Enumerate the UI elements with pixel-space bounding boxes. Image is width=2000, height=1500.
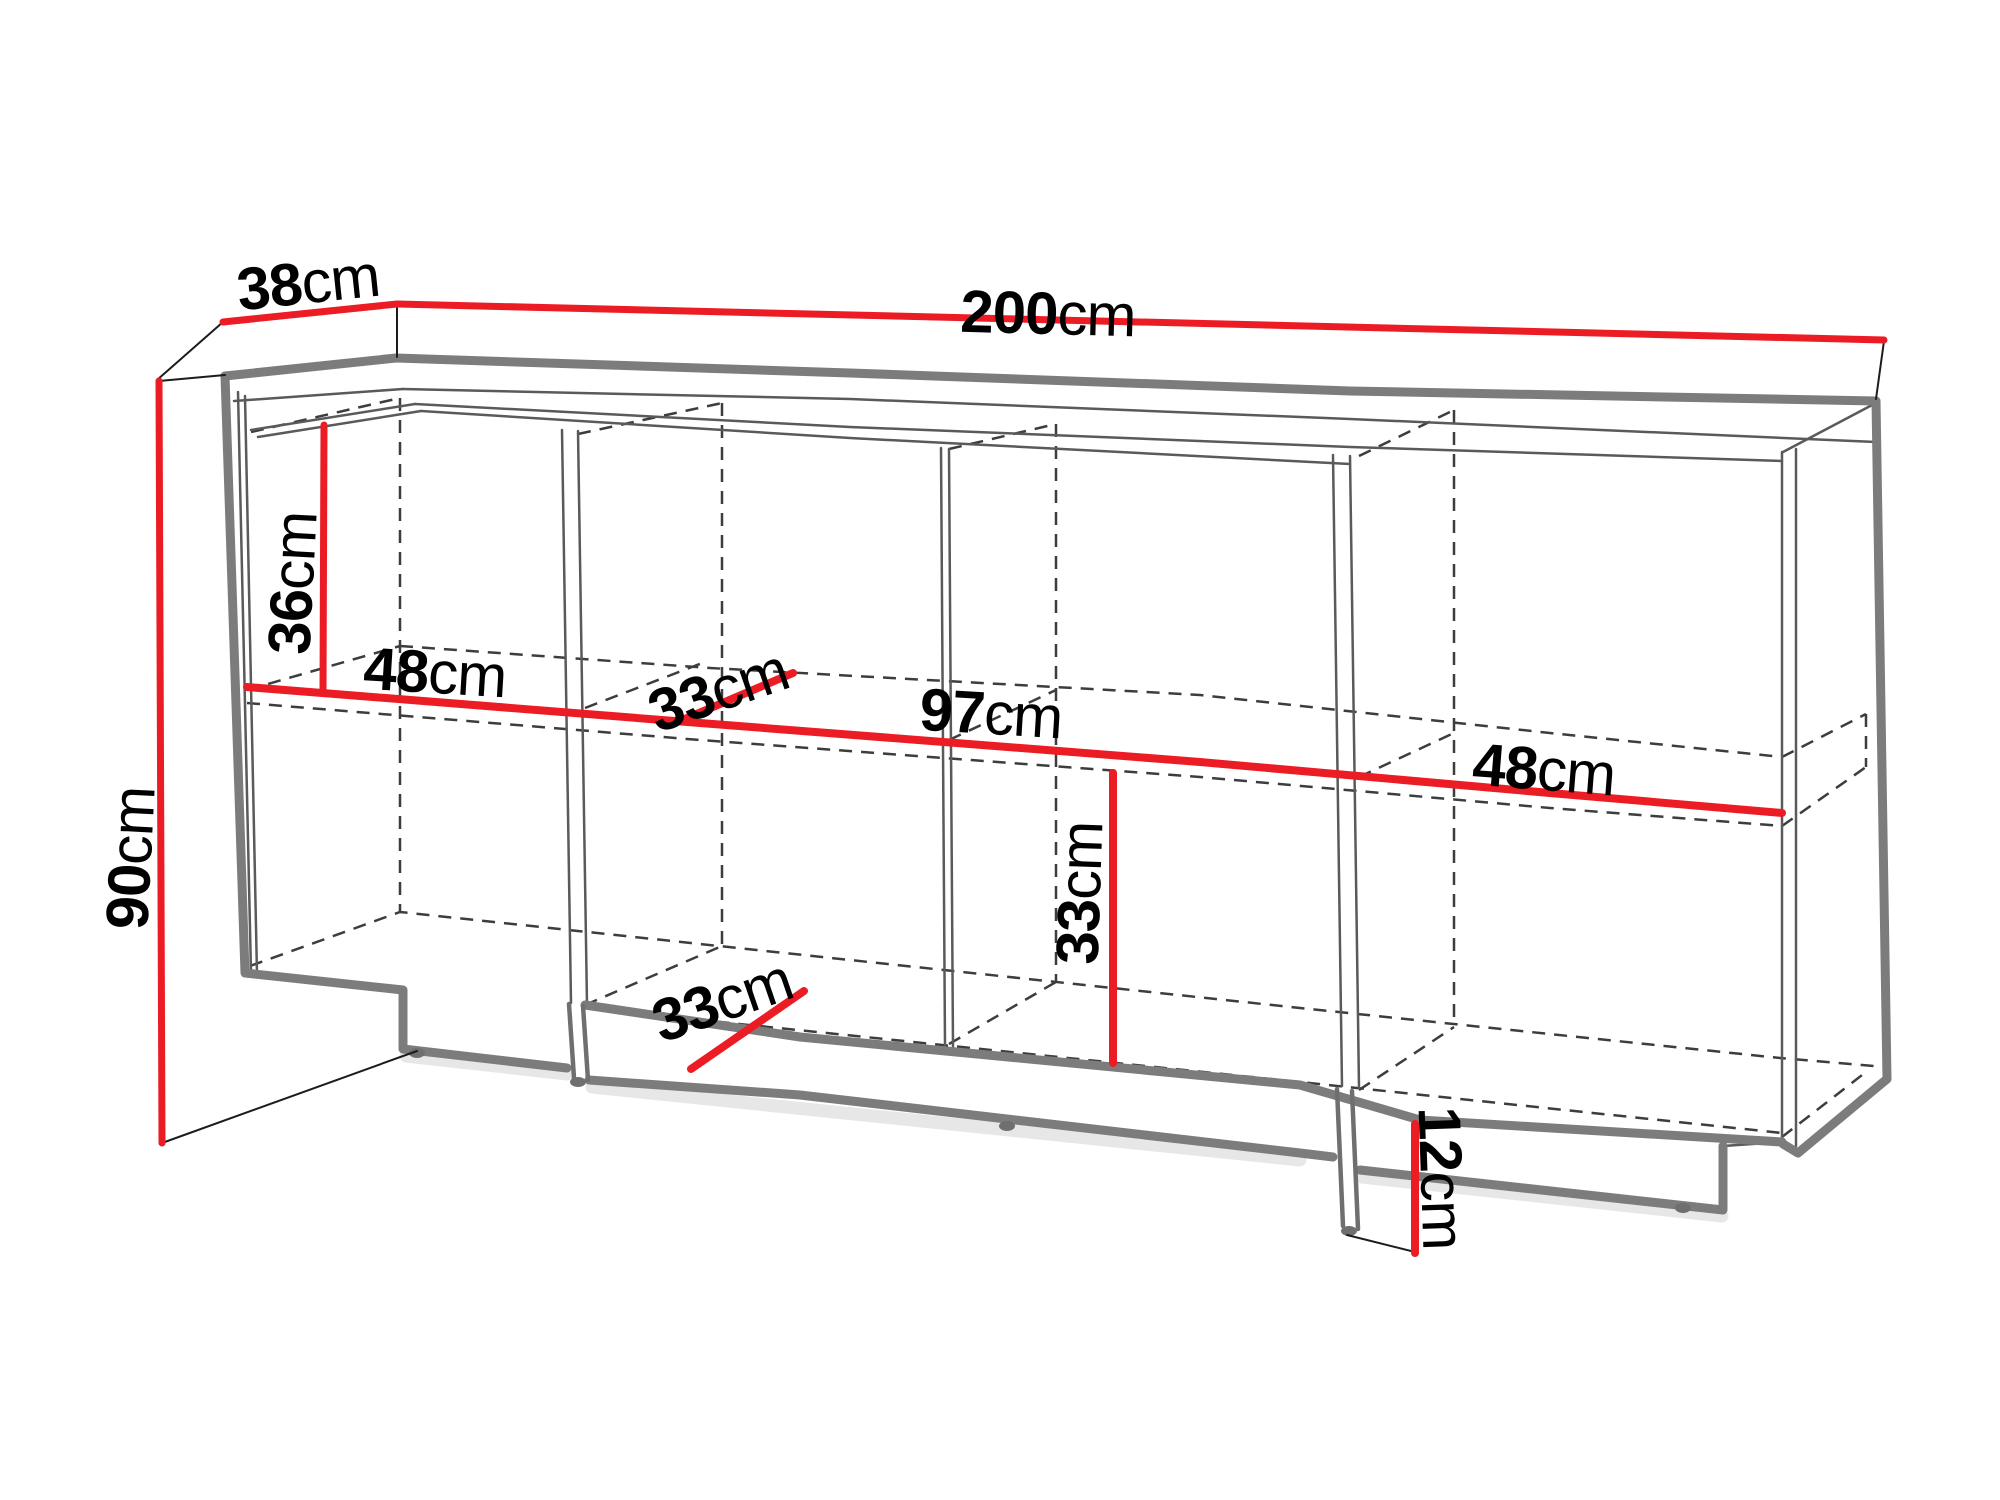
- label-right-shelf-width: 48cm: [1470, 730, 1618, 808]
- plinth-bottom-middle: [589, 1080, 1333, 1157]
- label-left-shelf-width: 48cm: [362, 634, 509, 710]
- label-width-value: 200: [960, 277, 1059, 347]
- label-97-value: 97: [918, 675, 987, 746]
- label-height-unit: cm: [96, 785, 167, 866]
- label-48R-unit: cm: [1535, 735, 1618, 808]
- label-lower-shelf-depth: 33cm: [644, 945, 801, 1055]
- label-36-unit: cm: [258, 510, 329, 591]
- label-plinth-height: 12cm: [1406, 1106, 1478, 1251]
- interior-ceiling-back-edge: [421, 411, 1350, 464]
- label-width: 200cm: [960, 277, 1137, 349]
- foot: [570, 1077, 586, 1087]
- label-97-unit: cm: [982, 679, 1064, 751]
- label-width-unit: cm: [1057, 280, 1137, 349]
- label-12-value: 12: [1406, 1106, 1475, 1173]
- label-depth-value: 38: [234, 249, 305, 322]
- label-middle-width: 97cm: [918, 675, 1065, 751]
- label-48R-value: 48: [1470, 730, 1540, 802]
- label-12-unit: cm: [1408, 1170, 1478, 1250]
- label-36-value: 36: [255, 588, 325, 656]
- label-33V-unit: cm: [1045, 821, 1115, 901]
- label-48L-unit: cm: [426, 638, 508, 710]
- foot: [1675, 1203, 1691, 1213]
- sideboard-dimension-drawing: 38cm 200cm 90cm 36cm 48cm 33cm 97cm 48cm…: [0, 0, 2000, 1500]
- label-height: 90cm: [93, 785, 167, 931]
- label-33V-value: 33: [1043, 898, 1112, 965]
- label-height-value: 90: [93, 863, 163, 931]
- dimension-diagram: 38cm 200cm 90cm 36cm 48cm 33cm 97cm 48cm…: [0, 0, 2000, 1500]
- height-dimension-line: [159, 381, 162, 1143]
- left-edge: [225, 376, 567, 1068]
- width-dimension-line: [397, 304, 1884, 340]
- hidden-lines: [247, 398, 1874, 1137]
- partition2-front-edge: [941, 448, 945, 1046]
- right-edge: [1783, 401, 1887, 1153]
- label-upper-compartment-height: 36cm: [255, 510, 329, 656]
- label-lower-compartment-height: 33cm: [1043, 821, 1115, 966]
- top-edge: [225, 358, 1876, 401]
- foot: [999, 1121, 1015, 1131]
- label-48L-value: 48: [362, 634, 431, 705]
- label-depth-unit: cm: [298, 241, 383, 316]
- interior-ceiling-front-edge: [415, 404, 1782, 461]
